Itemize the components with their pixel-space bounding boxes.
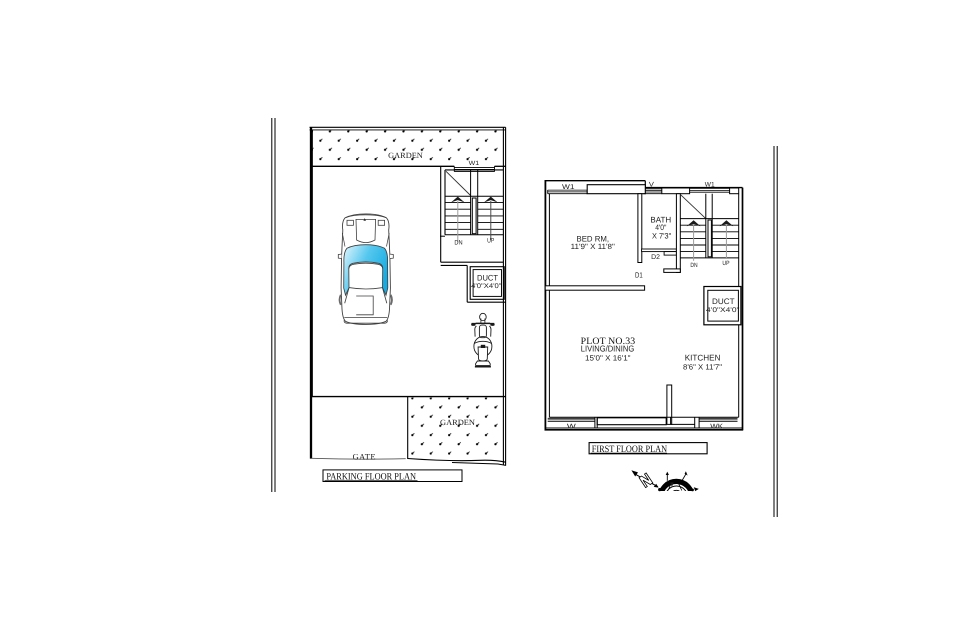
svg-text:KITCHEN: KITCHEN (685, 353, 721, 363)
svg-text:DN: DN (454, 240, 463, 247)
svg-text:W1: W1 (562, 184, 575, 191)
svg-text:X 7'3": X 7'3" (652, 231, 671, 240)
svg-text:11'9" X 11'8": 11'9" X 11'8" (571, 242, 616, 251)
svg-text:V: V (649, 181, 655, 188)
svg-text:W1: W1 (469, 160, 480, 167)
svg-text:W: W (567, 423, 576, 430)
svg-text:UP: UP (722, 260, 729, 267)
svg-text:4'0"X4'0": 4'0"X4'0" (706, 307, 740, 314)
svg-text:GARDEN: GARDEN (388, 151, 423, 160)
svg-text:DN: DN (690, 262, 697, 269)
svg-text:W1: W1 (705, 181, 715, 188)
svg-text:DUCT: DUCT (477, 274, 498, 283)
svg-text:8'6" X 11'7": 8'6" X 11'7" (683, 362, 722, 371)
svg-text:4'0"X4'0": 4'0"X4'0" (471, 283, 502, 290)
svg-text:D1: D1 (635, 271, 643, 280)
svg-text:WK: WK (710, 423, 723, 430)
svg-text:GATE: GATE (353, 452, 376, 461)
svg-text:LIVING/DINING: LIVING/DINING (581, 344, 635, 354)
svg-text:D2: D2 (651, 254, 660, 261)
svg-text:DUCT: DUCT (712, 297, 735, 306)
svg-text:GARDEN: GARDEN (440, 418, 475, 427)
svg-text:UP: UP (487, 237, 494, 244)
svg-text:15'0" X 16'1": 15'0" X 16'1" (585, 354, 631, 363)
